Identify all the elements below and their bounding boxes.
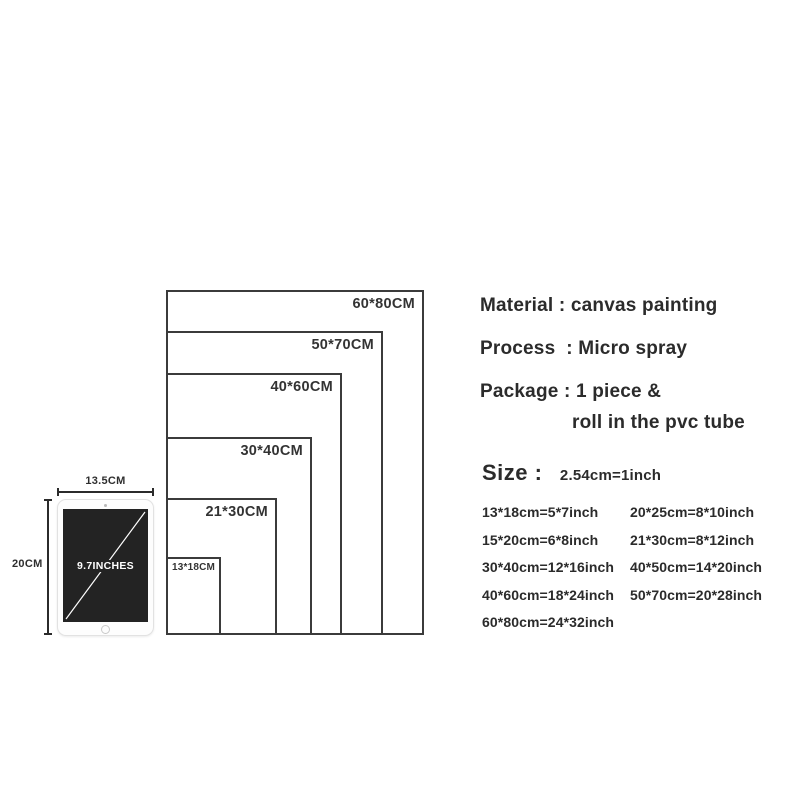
size-cell: 15*20cm=6*8inch xyxy=(482,531,630,549)
size-conversion-table: 13*18cm=5*7inch 20*25cm=8*10inch 15*20cm… xyxy=(482,503,782,641)
size-table-row: 15*20cm=6*8inch 21*30cm=8*12inch xyxy=(482,531,782,549)
tablet-camera-dot xyxy=(104,504,107,507)
height-measure-label: 20CM xyxy=(12,558,43,570)
screen-size-label: 9.7INCHES xyxy=(63,560,148,572)
size-cell: 13*18cm=5*7inch xyxy=(482,503,630,521)
size-heading-row: Size : 2.54cm=1inch xyxy=(482,460,661,486)
size-rect-label: 40*60CM xyxy=(270,379,333,395)
size-rect-label: 30*40CM xyxy=(240,443,303,459)
package-line-1: Package : 1 piece & xyxy=(480,381,661,403)
size-cell xyxy=(630,613,782,631)
canvas-size-rect-13x18: 13*18CM xyxy=(166,557,221,635)
tablet-home-button xyxy=(101,625,110,634)
size-table-row: 13*18cm=5*7inch 20*25cm=8*10inch xyxy=(482,503,782,521)
size-cell: 50*70cm=20*28inch xyxy=(630,586,782,604)
material-line: Material : canvas painting xyxy=(480,295,718,317)
height-measure-line xyxy=(47,500,49,634)
width-measure-line xyxy=(58,491,153,493)
size-rect-label: 21*30CM xyxy=(205,504,268,520)
tablet-illustration: 9.7INCHES xyxy=(57,499,154,636)
package-line-2: roll in the pvc tube xyxy=(572,412,745,434)
size-rect-label: 50*70CM xyxy=(311,337,374,353)
size-table-row: 30*40cm=12*16inch 40*50cm=14*20inch xyxy=(482,558,782,576)
product-size-chart: 60*80CM 50*70CM 40*60CM 30*40CM 21*30CM … xyxy=(0,0,800,800)
size-rect-label: 60*80CM xyxy=(352,296,415,312)
process-line: Process : Micro spray xyxy=(480,338,687,360)
tablet-screen: 9.7INCHES xyxy=(63,509,148,622)
size-cell: 60*80cm=24*32inch xyxy=(482,613,630,631)
size-cell: 40*50cm=14*20inch xyxy=(630,558,782,576)
size-conversion-note: 2.54cm=1inch xyxy=(560,467,661,484)
size-table-row: 60*80cm=24*32inch xyxy=(482,613,782,631)
size-rect-label: 13*18CM xyxy=(172,562,215,573)
size-cell: 30*40cm=12*16inch xyxy=(482,558,630,576)
width-measure-label: 13.5CM xyxy=(58,475,153,487)
size-cell: 21*30cm=8*12inch xyxy=(630,531,782,549)
size-heading: Size : xyxy=(482,460,542,485)
size-table-row: 40*60cm=18*24inch 50*70cm=20*28inch xyxy=(482,586,782,604)
size-cell: 40*60cm=18*24inch xyxy=(482,586,630,604)
size-cell: 20*25cm=8*10inch xyxy=(630,503,782,521)
